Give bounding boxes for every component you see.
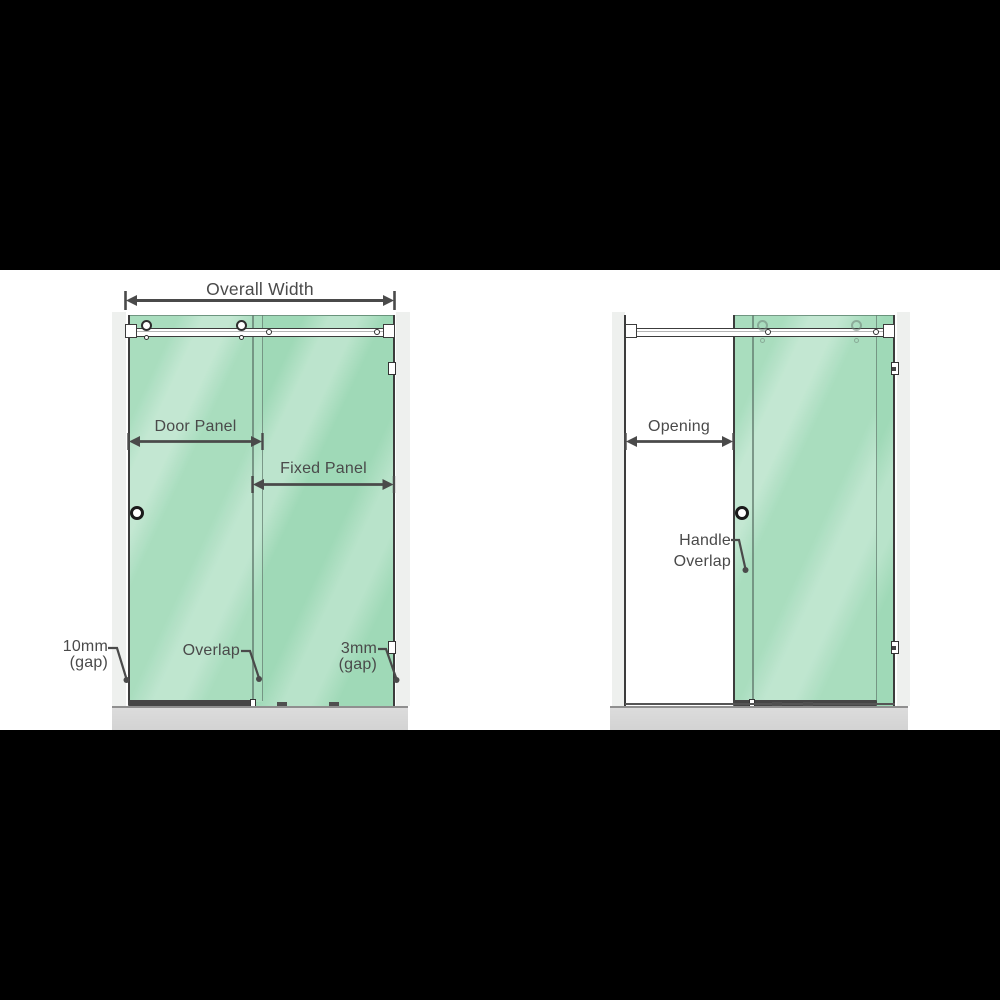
diagram-canvas: Overall Width Door Panel Fixed Panel Ove… <box>0 270 1000 730</box>
bottom-guide-track <box>625 703 895 705</box>
door-handle-icon <box>130 506 144 520</box>
door-panel-right-edge <box>262 315 264 701</box>
gap-10mm-value: 10mm <box>28 639 108 655</box>
roller-icon <box>236 320 247 331</box>
door-handle-icon <box>735 506 749 520</box>
overlap-label: Overlap <box>140 642 240 660</box>
gap-3mm-label: 3mm (gap) <box>299 641 377 673</box>
fixed-panel-left-edge <box>752 315 754 706</box>
left-diagram-wall-left <box>112 312 126 706</box>
roller-bolt-icon <box>854 338 859 343</box>
bar-clamp-icon <box>765 329 771 335</box>
shower-tray <box>112 706 408 730</box>
gap-3mm-value: 3mm <box>299 641 377 657</box>
bar-clamp-icon <box>873 329 879 335</box>
roller-bolt-icon <box>239 335 244 340</box>
wall-bracket-icon <box>891 641 899 654</box>
opening-label: Opening <box>625 418 733 436</box>
track-bar-endcap-right <box>383 324 395 338</box>
bottom-letterbox <box>0 730 1000 1000</box>
door-panel-label: Door Panel <box>128 418 263 436</box>
door-panel-glass-open <box>733 315 877 702</box>
track-bar-endcap-left <box>125 324 137 338</box>
bar-clamp-icon <box>266 329 272 335</box>
track-bar <box>125 328 395 337</box>
wall-bracket-icon <box>388 641 396 654</box>
wall-bracket-icon <box>891 362 899 375</box>
roller-icon <box>141 320 152 331</box>
track-bar-endcap-left <box>625 324 637 338</box>
handle-overlap-label: Handle Overlap <box>639 530 731 572</box>
roller-bolt-icon <box>760 338 765 343</box>
door-panel-left-edge <box>733 315 735 701</box>
track-bar-endcap-right <box>883 324 895 338</box>
roller-icon <box>851 320 862 331</box>
handle-overlap-line1: Handle <box>639 530 731 551</box>
overall-width-label: Overall Width <box>125 279 395 300</box>
shower-tray <box>610 706 908 730</box>
gap-10mm-unit: (gap) <box>28 655 108 671</box>
fixed-panel-left-edge <box>252 315 254 706</box>
handle-overlap-line2: Overlap <box>639 551 731 572</box>
door-panel-left-edge <box>128 315 130 701</box>
fixed-panel-label: Fixed Panel <box>252 460 395 478</box>
wall-bracket-icon <box>388 362 396 375</box>
top-letterbox <box>0 0 1000 270</box>
gap-3mm-unit: (gap) <box>299 657 377 673</box>
left-diagram-wall-right <box>396 312 410 706</box>
gap-10mm-label: 10mm (gap) <box>28 639 108 671</box>
door-panel-right-edge <box>876 315 878 701</box>
opening-wall-edge <box>624 315 626 706</box>
bar-clamp-icon <box>374 329 380 335</box>
roller-bolt-icon <box>144 335 149 340</box>
